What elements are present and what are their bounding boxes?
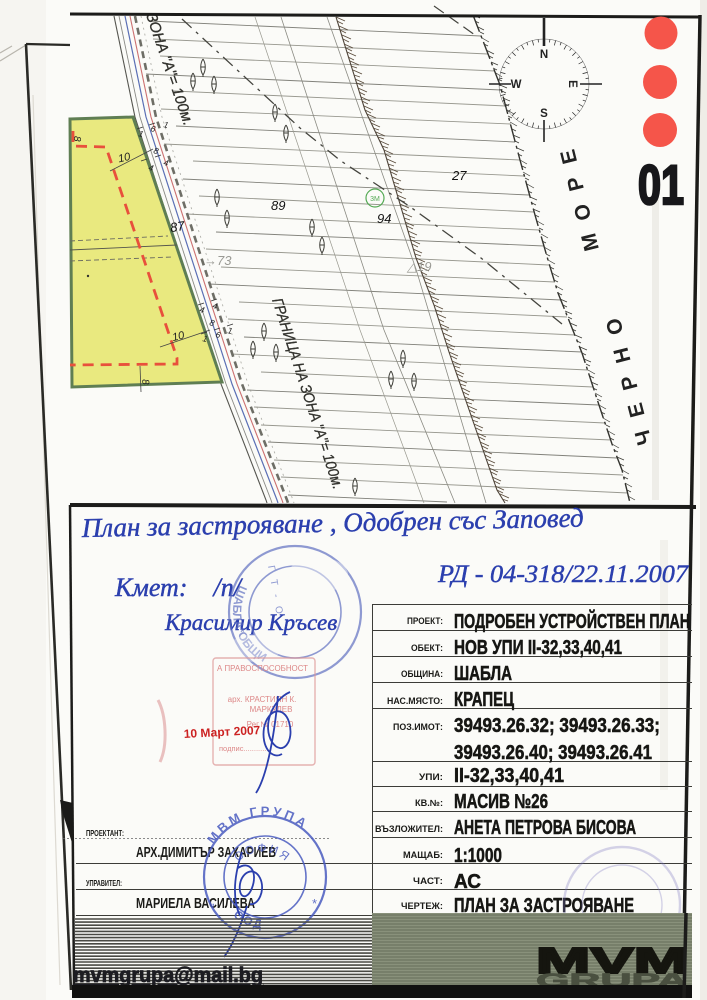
svg-text:mvmgrupa@mail.bg: mvmgrupa@mail.bg bbox=[73, 964, 263, 987]
svg-text:E: E bbox=[566, 80, 578, 88]
svg-text:„: „ bbox=[210, 893, 214, 908]
svg-text:89: 89 bbox=[271, 198, 285, 213]
svg-text:АС: АС bbox=[454, 871, 481, 893]
svg-text:39493.26.32; 39493.26.33;: 39493.26.32; 39493.26.33; bbox=[454, 715, 660, 737]
svg-text:27: 27 bbox=[451, 168, 467, 183]
svg-text:НАС.МЯСТО:: НАС.МЯСТО: bbox=[387, 696, 443, 706]
svg-text:ШАБЛА: ШАБЛА bbox=[454, 663, 512, 685]
svg-text:→73: →73 bbox=[204, 253, 232, 268]
svg-text:ПОДРОБЕН УСТРОЙСТВЕН ПЛАН: ПОДРОБЕН УСТРОЙСТВЕН ПЛАН bbox=[454, 609, 690, 633]
svg-text:ОБЩИНА:: ОБЩИНА: bbox=[401, 669, 443, 679]
svg-text:△19: △19 bbox=[406, 259, 431, 274]
svg-text:АНЕТА ПЕТРОВА БИСОВА: АНЕТА ПЕТРОВА БИСОВА bbox=[454, 817, 636, 839]
svg-text:ВЪЗЛОЖИТЕЛ:: ВЪЗЛОЖИТЕЛ: bbox=[375, 824, 443, 834]
svg-text:УПРАВИТЕЛ:: УПРАВИТЕЛ: bbox=[86, 878, 122, 888]
svg-text:А ПРАВОСПОСОБНОСТ: А ПРАВОСПОСОБНОСТ bbox=[217, 664, 308, 673]
svg-text:ЧАСТ:: ЧАСТ: bbox=[413, 876, 443, 886]
svg-text:N: N bbox=[540, 49, 548, 61]
svg-text:КРАПЕЦ: КРАПЕЦ bbox=[454, 689, 514, 711]
svg-text:арх. КРАСТИЯН К.: арх. КРАСТИЯН К. bbox=[228, 695, 297, 704]
svg-text:ЧЕРТЕЖ:: ЧЕРТЕЖ: bbox=[401, 901, 443, 911]
svg-text:II-32,33,40,41: II-32,33,40,41 bbox=[454, 765, 564, 787]
svg-text:КВ.№:: КВ.№: bbox=[415, 798, 443, 808]
svg-text:МАЩАБ:: МАЩАБ: bbox=[403, 850, 443, 860]
svg-text:ПРОЕКТАНТ:: ПРОЕКТАНТ: bbox=[86, 828, 124, 838]
svg-text:S: S bbox=[540, 108, 548, 120]
svg-text:W: W bbox=[511, 79, 522, 91]
svg-text:УПИ:: УПИ: bbox=[419, 772, 443, 782]
svg-text:01: 01 bbox=[638, 153, 684, 216]
svg-text:94: 94 bbox=[377, 211, 391, 226]
svg-text:ПРОЕКТ:: ПРОЕКТ: bbox=[407, 616, 443, 626]
svg-text:1:1000: 1:1000 bbox=[454, 845, 502, 867]
svg-text:РД - 04-318/22.11.2007: РД - 04-318/22.11.2007 bbox=[437, 561, 690, 588]
svg-text:Кмет: /п/: Кмет: /п/ bbox=[114, 573, 244, 602]
svg-text:*: * bbox=[312, 896, 317, 911]
svg-text:МАСИВ №26: МАСИВ №26 bbox=[454, 791, 548, 813]
svg-text:НОВ УПИ II-32,33,40,41: НОВ УПИ II-32,33,40,41 bbox=[454, 637, 622, 659]
svg-text:8: 8 bbox=[71, 136, 82, 142]
svg-text:ПОЗ.ИМОТ:: ПОЗ.ИМОТ: bbox=[393, 722, 443, 732]
svg-text:39493.26.40; 39493.26.41: 39493.26.40; 39493.26.41 bbox=[454, 742, 652, 764]
svg-text:3M: 3M bbox=[370, 196, 380, 203]
svg-text:ОБЕКТ:: ОБЕКТ: bbox=[411, 643, 443, 653]
svg-text:87: 87 bbox=[169, 218, 186, 235]
svg-text:подпис............: подпис............ bbox=[219, 744, 268, 753]
